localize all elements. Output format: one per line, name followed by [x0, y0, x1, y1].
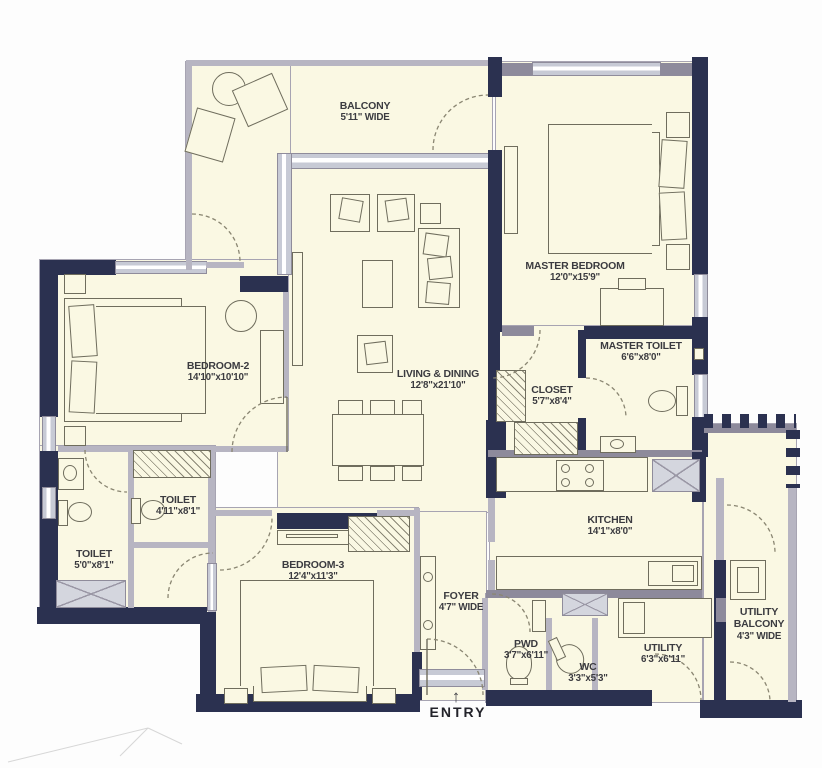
- wall-service-bottom: [486, 690, 652, 706]
- toilet-common-name: TOILET: [156, 494, 200, 506]
- wall-ub-left-low: [714, 622, 726, 702]
- hob-burner-4: [585, 478, 594, 487]
- armchair-2c: [385, 198, 410, 223]
- kitchen-name: KITCHEN: [587, 514, 632, 526]
- pwd-dims: 3'7"x6'11": [504, 650, 548, 662]
- foyer-name: FOYER: [439, 590, 483, 602]
- foyer-cabinet-knob-2: [423, 620, 433, 630]
- balcony-name: BALCONY: [340, 100, 391, 112]
- tv-console: [292, 252, 303, 366]
- dining-chair-b1: [338, 466, 363, 481]
- wall-kitchen-left1: [488, 498, 495, 542]
- window-bedroom2-left: [43, 417, 55, 451]
- toilet-common-dims: 4'11"x8'1": [156, 506, 200, 518]
- label-foyer: FOYER 4'7" WIDE: [439, 590, 483, 614]
- side-table: [420, 203, 441, 224]
- bedroom2-chair: [225, 300, 257, 332]
- site-line-1: [8, 728, 148, 762]
- bedroom3-nightstand-1: [224, 688, 248, 704]
- label-master-bedroom: MASTER BEDROOM 12'0"x15'9": [525, 260, 624, 284]
- label-pwd: PWD 3'7"x6'11": [504, 638, 548, 662]
- toilet-common-wc-tank: [131, 498, 141, 524]
- mb-blanket: [548, 124, 652, 254]
- utility-balcony-name: UTILITY BALCONY: [727, 606, 791, 631]
- mb-dresser: [600, 288, 664, 326]
- utility-dims: 6'3"x6'11": [641, 654, 685, 666]
- dining-chair-t1: [338, 400, 363, 415]
- armchair-3c: [364, 341, 389, 366]
- bedroom2-desk: [260, 330, 284, 404]
- wall-balcony-top: [186, 60, 492, 66]
- wall-bedroom3-left-low: [200, 612, 216, 704]
- sofa-cushion-3: [425, 281, 451, 305]
- bedroom2-nightstand-1: [64, 274, 86, 294]
- pwd-sink: [532, 600, 546, 632]
- label-closet: CLOSET 5'7"x8'4": [531, 384, 572, 408]
- window-mb-right: [695, 275, 707, 317]
- wall-mb-right-top: [692, 57, 708, 275]
- site-line-2: [148, 728, 182, 744]
- bedroom3-tv: [286, 534, 338, 538]
- toilet-small-sink-basin: [63, 465, 77, 481]
- coffee-table: [362, 260, 393, 308]
- wall-mb-left-main: [488, 150, 502, 332]
- master-toilet-name: MASTER TOILET: [600, 340, 682, 352]
- window-mb-top: [533, 63, 660, 75]
- balcony-dims: 5'11" WIDE: [340, 112, 391, 124]
- toilet-small-wc-bowl: [68, 502, 92, 522]
- washing-machine-inner: [737, 567, 759, 593]
- living-dining-name: LIVING & DINING: [397, 368, 479, 380]
- utility-name: UTILITY: [641, 642, 685, 654]
- window-mt-right: [695, 375, 707, 417]
- label-utility: UTILITY 6'3"x6'11": [641, 642, 685, 666]
- foyer-dims: 4'7" WIDE: [439, 602, 483, 614]
- duct-shaft-service: [562, 593, 608, 616]
- label-living-dining: LIVING & DINING 12'8"x21'10": [397, 368, 479, 392]
- wall-ub-crenellation-top: [704, 414, 796, 428]
- armchair-1c: [338, 197, 363, 222]
- label-utility-balcony: UTILITY BALCONY 4'3" WIDE: [727, 606, 791, 642]
- wall-toilet-lobby: [130, 542, 214, 548]
- pwd-wc-base: [510, 678, 528, 685]
- bedroom2-dims: 14'10"x10'10": [187, 372, 249, 384]
- bedroom2-pillow-2: [69, 360, 98, 413]
- bedroom3-pillow-2: [312, 665, 359, 693]
- wall-ub-crenellation-right: [786, 430, 800, 488]
- dining-table: [332, 414, 424, 466]
- mt-sink-basin: [610, 439, 624, 449]
- mb-wardrobe: [504, 146, 518, 234]
- duct-shaft-toilets: [56, 580, 126, 608]
- wall-balcony-left: [186, 60, 192, 270]
- label-toilet-common: TOILET 4'11"x8'1": [156, 494, 200, 518]
- bedroom2-wardrobe: [133, 450, 211, 478]
- window-toilet-left: [43, 488, 55, 518]
- wall-ub-right: [788, 488, 796, 702]
- dining-chair-t3: [402, 400, 422, 415]
- floor-plan: BALCONY 5'11" WIDE MASTER BEDROOM 12'0"x…: [0, 0, 822, 768]
- hob-burner-3: [561, 478, 570, 487]
- foyer-cabinet: [420, 556, 436, 650]
- wall-bedroom2-top-left: [40, 260, 116, 275]
- wall-closet-top-stub: [502, 326, 534, 336]
- wall-bottom-left-band: [37, 607, 207, 624]
- hob-burner-1: [561, 464, 570, 473]
- sofa-cushion-1: [423, 232, 450, 257]
- label-bedroom2: BEDROOM-2 14'10"x10'10": [187, 360, 249, 384]
- sofa-cushion-2: [427, 256, 453, 280]
- entry-threshold: [420, 670, 484, 686]
- site-line-3: [120, 728, 148, 756]
- wall-closet-mt-div-top: [578, 330, 586, 378]
- wc-name: WC: [568, 661, 607, 673]
- wall-mb-right-low: [692, 317, 708, 375]
- bedroom3-wardrobe: [348, 516, 410, 552]
- closet-wardrobe-left: [496, 370, 526, 422]
- mt-wc-tank: [676, 386, 688, 416]
- master-bedroom-name: MASTER BEDROOM: [525, 260, 624, 272]
- sliding-door-living-balcony: [278, 154, 492, 168]
- dining-chair-b3: [402, 466, 422, 481]
- mt-counter-mark: [694, 348, 704, 360]
- utility-counter-pillow: [623, 602, 645, 634]
- label-kitchen: KITCHEN 14'1"x8'0": [587, 514, 632, 538]
- duct-shaft-kitchen: [652, 459, 700, 492]
- kitchen-sink-basin: [672, 565, 694, 582]
- label-bedroom3: BEDROOM-3 12'4"x11'3": [282, 559, 344, 583]
- bedroom2-name: BEDROOM-2: [187, 360, 249, 372]
- wall-mb-top-corner: [488, 60, 502, 77]
- window-bedroom3-left: [208, 564, 216, 610]
- bedroom3-dims: 12'4"x11'3": [282, 571, 344, 583]
- utility-balcony-dims: 4'3" WIDE: [727, 631, 791, 643]
- living-dining-dims: 12'8"x21'10": [397, 380, 479, 392]
- label-master-toilet: MASTER TOILET 6'6"x8'0": [600, 340, 682, 364]
- wall-living-top-left: [278, 154, 291, 274]
- wc-dims: 3'3"x5'3": [568, 673, 607, 685]
- bedroom3-name: BEDROOM-3: [282, 559, 344, 571]
- wall-mt-top: [584, 326, 694, 339]
- wall-bedroom2-corner: [240, 276, 288, 292]
- closet-name: CLOSET: [531, 384, 572, 396]
- entry-arrow-icon: ↑: [452, 688, 461, 705]
- mb-nightstand-1: [666, 112, 690, 138]
- wall-bedroom2-top-thin: [206, 262, 244, 268]
- label-balcony: BALCONY 5'11" WIDE: [340, 100, 391, 124]
- label-toilet-small: TOILET 5'0"x8'1": [74, 548, 113, 572]
- toilet-small-name: TOILET: [74, 548, 113, 560]
- bedroom3-nightstand-2: [372, 688, 396, 704]
- wall-mb-top-g1: [502, 63, 533, 76]
- wall-mb-top-g2: [660, 63, 692, 76]
- bedroom3-pillow-1: [260, 665, 307, 693]
- toilet-small-dims: 5'0"x8'1": [74, 560, 113, 572]
- foyer-cabinet-knob-1: [423, 572, 433, 582]
- wall-bedroom3-top-thin1: [208, 510, 272, 516]
- wall-bedroom2-left: [40, 260, 58, 417]
- closet-wardrobe-bottom: [514, 422, 578, 455]
- entry-label: ENTRY: [430, 704, 487, 720]
- bedroom2-nightstand-2: [64, 426, 86, 446]
- window-bedroom2-top: [116, 262, 206, 273]
- wall-ub-left-g: [716, 598, 726, 622]
- dining-chair-b2: [370, 466, 395, 481]
- kitchen-dims: 14'1"x8'0": [587, 526, 632, 538]
- closet-dims: 5'7"x8'4": [531, 396, 572, 408]
- label-wc: WC 3'3"x5'3": [568, 661, 607, 685]
- master-toilet-dims: 6'6"x8'0": [600, 352, 682, 364]
- master-bedroom-dims: 12'0"x15'9": [525, 272, 624, 284]
- dining-chair-t2: [370, 400, 395, 415]
- mb-pillow-2: [659, 191, 687, 240]
- mb-nightstand-2: [666, 244, 690, 270]
- hob-burner-2: [585, 464, 594, 473]
- bedroom2-pillow-1: [68, 304, 98, 358]
- toilet-small-wc-tank: [58, 500, 68, 526]
- mb-pillow-1: [658, 139, 687, 189]
- wall-ub-bottom: [700, 700, 802, 718]
- pwd-name: PWD: [504, 638, 548, 650]
- wall-ub-left-thin: [716, 478, 724, 562]
- mt-wc-bowl: [648, 390, 676, 412]
